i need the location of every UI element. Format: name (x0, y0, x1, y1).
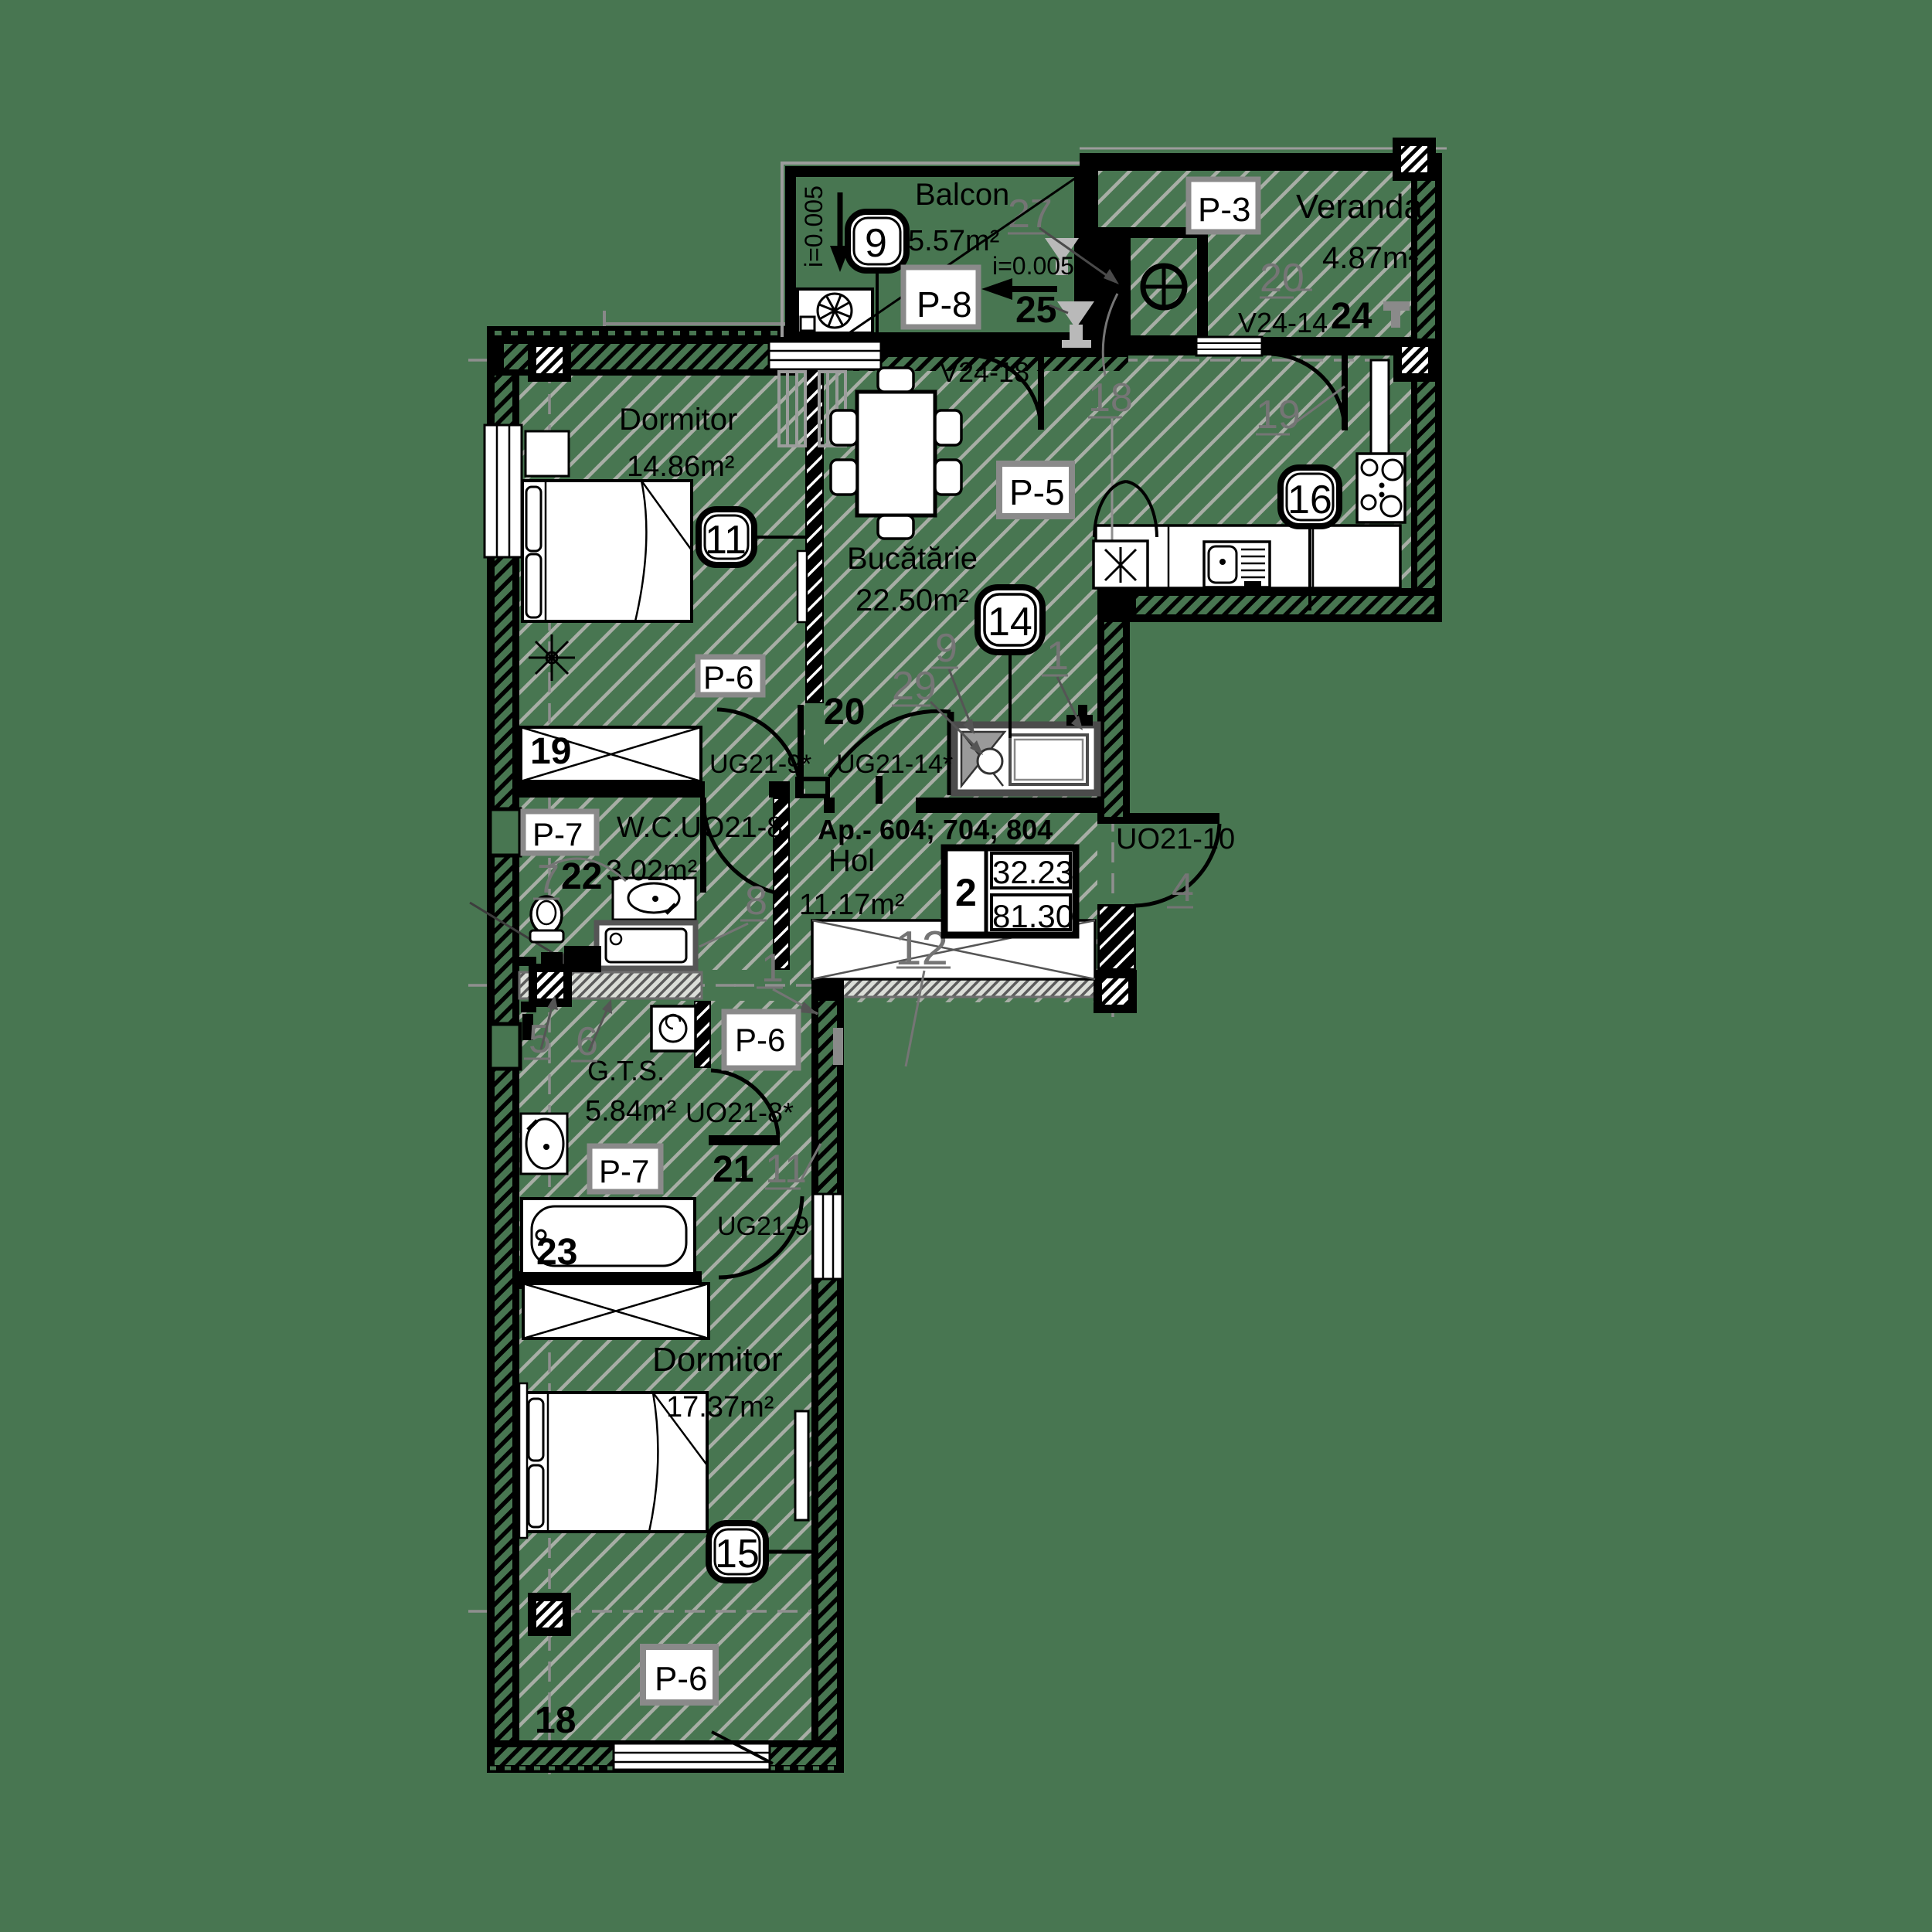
svg-text:29: 29 (892, 664, 937, 709)
svg-text:i=0.005: i=0.005 (800, 185, 828, 267)
svg-text:P-7: P-7 (532, 816, 583, 852)
svg-text:15: 15 (715, 1532, 760, 1577)
svg-text:W.C.UO21-8: W.C.UO21-8 (617, 811, 783, 844)
svg-text:4: 4 (1172, 866, 1194, 910)
svg-text:19: 19 (1256, 393, 1301, 437)
svg-text:G.T.S.: G.T.S. (587, 1055, 665, 1087)
svg-text:20: 20 (824, 692, 865, 733)
svg-text:6: 6 (576, 1019, 598, 1064)
svg-text:2: 2 (955, 871, 977, 914)
svg-text:Dormitor: Dormitor (619, 403, 737, 437)
svg-text:3.02m²: 3.02m² (606, 855, 697, 887)
svg-text:22.50m²: 22.50m² (855, 583, 969, 617)
svg-text:24: 24 (1331, 296, 1372, 337)
svg-text:11.17m²: 11.17m² (799, 889, 905, 921)
svg-text:18: 18 (1088, 376, 1133, 420)
svg-text:81.30: 81.30 (992, 898, 1073, 934)
svg-text:P-8: P-8 (917, 284, 972, 325)
svg-text:P-6: P-6 (655, 1660, 707, 1698)
svg-text:17.37m²: 17.37m² (666, 1391, 774, 1423)
svg-text:Dormitor: Dormitor (652, 1341, 783, 1379)
svg-text:1: 1 (761, 946, 784, 991)
svg-text:14: 14 (988, 600, 1032, 645)
svg-text:Ap.- 604; 704; 804: Ap.- 604; 704; 804 (818, 814, 1053, 845)
svg-text:V24-14: V24-14 (1238, 307, 1328, 338)
svg-text:32.23: 32.23 (992, 854, 1073, 890)
svg-text:P-7: P-7 (599, 1153, 649, 1189)
svg-text:5.57m²: 5.57m² (908, 225, 999, 257)
svg-text:UO21-10: UO21-10 (1116, 823, 1235, 855)
svg-text:P-5: P-5 (1009, 472, 1065, 512)
svg-text:UG21-9: UG21-9 (717, 1212, 809, 1241)
svg-text:P-6: P-6 (703, 659, 753, 696)
svg-text:20: 20 (1260, 256, 1304, 301)
svg-text:P-3: P-3 (1198, 191, 1250, 229)
svg-text:14.86m²: 14.86m² (627, 451, 734, 483)
svg-text:9: 9 (865, 221, 887, 266)
svg-text:i=0.005: i=0.005 (992, 252, 1074, 280)
svg-text:25: 25 (1015, 290, 1056, 331)
svg-text:Hol: Hol (828, 844, 875, 878)
svg-text:Balcon: Balcon (915, 178, 1009, 212)
svg-text:18: 18 (535, 1700, 576, 1741)
svg-text:16: 16 (1287, 478, 1332, 522)
svg-text:11: 11 (705, 518, 747, 563)
svg-text:Bucătărie: Bucătărie (847, 542, 978, 576)
svg-text:P-6: P-6 (735, 1022, 785, 1058)
svg-text:11: 11 (765, 1147, 807, 1192)
svg-text:UG21-14*: UG21-14* (836, 750, 953, 779)
svg-text:V24-18: V24-18 (940, 356, 1029, 388)
svg-text:Veranda: Veranda (1296, 188, 1423, 226)
svg-text:UG21-9*: UG21-9* (709, 750, 811, 779)
svg-text:UO21-8*: UO21-8* (685, 1097, 794, 1128)
svg-text:19: 19 (530, 731, 571, 772)
svg-text:9: 9 (935, 626, 957, 671)
svg-text:8: 8 (745, 879, 767, 923)
svg-text:5.84m²: 5.84m² (585, 1095, 676, 1128)
svg-text:23: 23 (536, 1232, 577, 1273)
svg-text:21: 21 (713, 1149, 753, 1190)
svg-text:4.87m²: 4.87m² (1322, 241, 1419, 275)
svg-text:1: 1 (1046, 634, 1069, 679)
